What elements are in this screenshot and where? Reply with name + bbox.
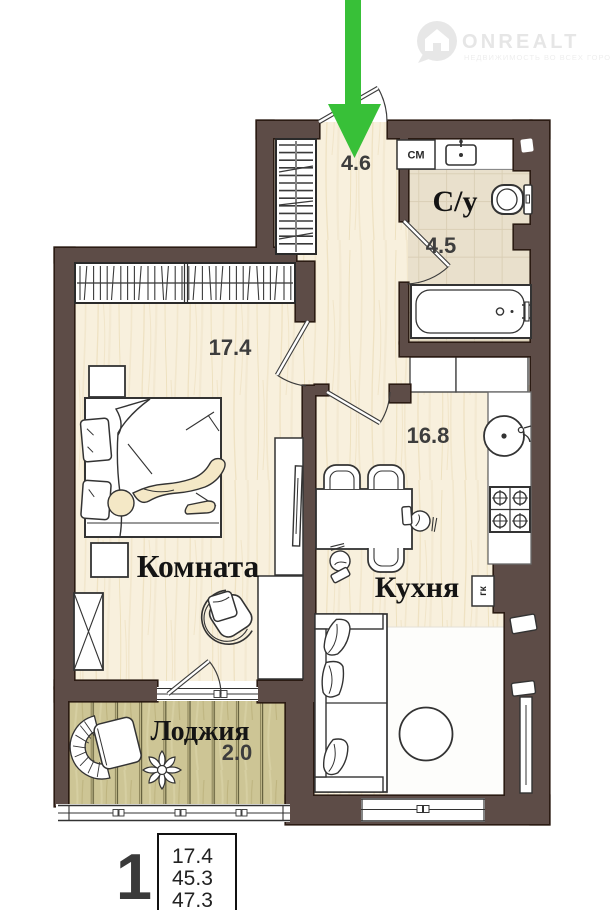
svg-text:Кухня: Кухня xyxy=(375,571,460,604)
svg-text:45.3: 45.3 xyxy=(172,867,213,890)
svg-text:С/у: С/у xyxy=(433,185,478,218)
svg-text:гк: гк xyxy=(477,585,489,595)
svg-text:4.5: 4.5 xyxy=(426,233,457,258)
svg-text:СМ: СМ xyxy=(408,150,425,162)
svg-text:Комната: Комната xyxy=(137,549,260,584)
svg-text:47.3: 47.3 xyxy=(172,889,213,910)
svg-text:16.8: 16.8 xyxy=(407,423,450,448)
svg-text:17.4: 17.4 xyxy=(172,845,213,868)
svg-text:17.4: 17.4 xyxy=(209,335,253,360)
svg-text:4.6: 4.6 xyxy=(341,151,371,175)
svg-text:2.0: 2.0 xyxy=(222,740,253,765)
svg-text:1: 1 xyxy=(116,840,152,910)
svg-text:ONREALT: ONREALT xyxy=(462,31,580,53)
svg-text:НЕДВИЖИМОСТЬ ВО ВСЕХ ГОРОДАХ: НЕДВИЖИМОСТЬ ВО ВСЕХ ГОРОДАХ xyxy=(464,53,610,62)
